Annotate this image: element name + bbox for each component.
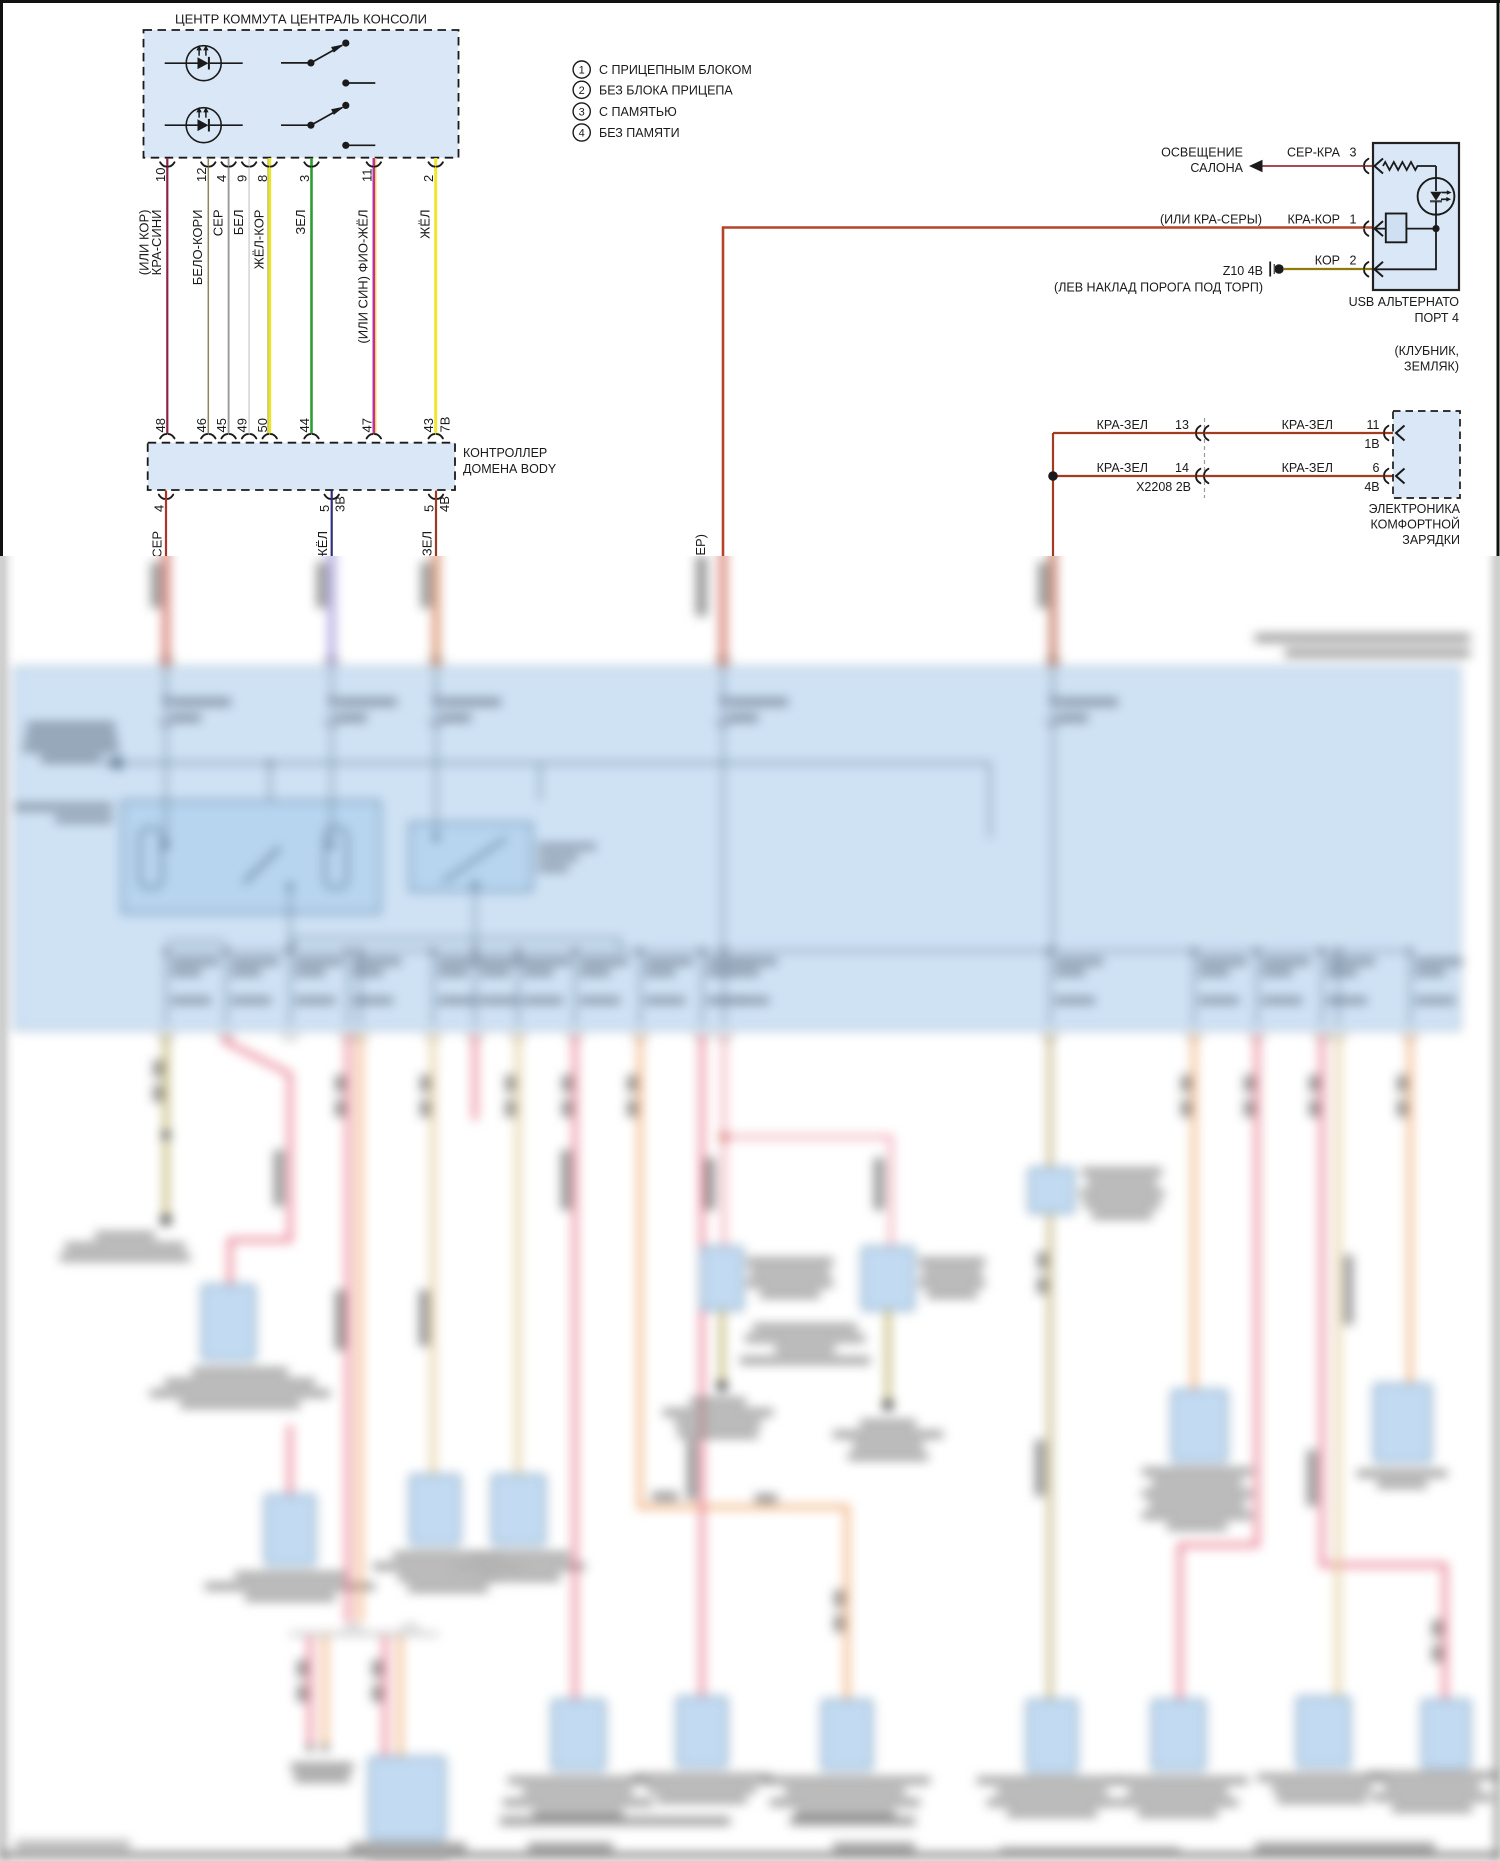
- svg-text:46: 46: [194, 418, 209, 432]
- svg-text:7В: 7В: [438, 417, 453, 433]
- svg-text:ЗАРЯДКИ: ЗАРЯДКИ: [1402, 533, 1460, 547]
- svg-text:КРА-ЗЕЛ: КРА-ЗЕЛ: [1282, 461, 1333, 475]
- svg-text:11: 11: [359, 169, 374, 183]
- svg-text:ЗЕМЛЯК): ЗЕМЛЯК): [1404, 360, 1459, 374]
- svg-text:48: 48: [153, 418, 168, 432]
- svg-text:ЗЕЛ: ЗЕЛ: [420, 531, 435, 556]
- svg-text:1: 1: [1350, 213, 1357, 227]
- svg-text:4: 4: [214, 175, 229, 182]
- svg-text:11: 11: [1367, 418, 1380, 432]
- svg-text:КРА-КОР: КРА-КОР: [1288, 213, 1340, 227]
- svg-text:ЖЁЛ: ЖЁЛ: [315, 531, 330, 556]
- svg-text:(ИЛИ КРА-СЕРЫ): (ИЛИ КРА-СЕРЫ): [1160, 213, 1262, 227]
- svg-text:3: 3: [579, 107, 585, 119]
- svg-text:(ИЛИ СИН) ФИО-ЖЁЛ: (ИЛИ СИН) ФИО-ЖЁЛ: [356, 210, 371, 344]
- svg-text:4: 4: [579, 128, 585, 140]
- svg-text:КРА-ЗЕЛ: КРА-ЗЕЛ: [1097, 418, 1148, 432]
- svg-text:КРА-ЗЕЛ: КРА-ЗЕЛ: [1282, 418, 1333, 432]
- svg-text:(ИЛИ КРА-СЕР): (ИЛИ КРА-СЕР): [693, 534, 708, 556]
- svg-text:ОСВЕЩЕНИЕ: ОСВЕЩЕНИЕ: [1161, 146, 1243, 160]
- svg-text:С ПРИЦЕПНЫМ БЛОКОМ: С ПРИЦЕПНЫМ БЛОКОМ: [599, 63, 752, 77]
- svg-text:2: 2: [421, 175, 436, 182]
- svg-text:3В: 3В: [333, 496, 348, 512]
- svg-text:14: 14: [1175, 461, 1189, 475]
- svg-text:БЕЛО-КОРИ: БЕЛО-КОРИ: [190, 210, 205, 286]
- svg-text:1: 1: [579, 65, 585, 77]
- svg-text:САЛОНА: САЛОНА: [1190, 161, 1243, 175]
- svg-text:13: 13: [1175, 418, 1189, 432]
- svg-text:КОР: КОР: [1315, 254, 1340, 268]
- svg-text:4В: 4В: [437, 496, 452, 512]
- svg-text:СЕР-КРА: СЕР-КРА: [1287, 146, 1341, 160]
- svg-text:ЗЕЛ: ЗЕЛ: [293, 210, 308, 235]
- svg-text:3: 3: [297, 175, 312, 182]
- svg-text:КОНТРОЛЛЕР: КОНТРОЛЛЕР: [463, 446, 547, 460]
- svg-text:45: 45: [214, 418, 229, 432]
- svg-text:2: 2: [1350, 254, 1357, 268]
- svg-text:50: 50: [255, 418, 270, 432]
- svg-text:2: 2: [579, 85, 585, 97]
- svg-text:X2208 2В: X2208 2В: [1136, 480, 1191, 494]
- svg-text:1В: 1В: [1364, 437, 1379, 451]
- svg-text:43: 43: [421, 418, 436, 432]
- svg-text:ЖЁЛ-КОР: ЖЁЛ-КОР: [251, 210, 266, 270]
- svg-text:44: 44: [297, 418, 312, 432]
- svg-text:9: 9: [235, 175, 250, 182]
- svg-text:КОМФОРТНОЙ: КОМФОРТНОЙ: [1370, 517, 1460, 532]
- svg-text:5: 5: [317, 505, 332, 512]
- svg-text:ЦЕНТР КОММУТА ЦЕНТРАЛЬ КОНСОЛИ: ЦЕНТР КОММУТА ЦЕНТРАЛЬ КОНСОЛИ: [175, 12, 427, 27]
- svg-text:БЕЛ: БЕЛ: [231, 209, 246, 235]
- svg-text:ЭЛЕКТРОНИКА: ЭЛЕКТРОНИКА: [1369, 502, 1461, 516]
- svg-text:С ПАМЯТЬЮ: С ПАМЯТЬЮ: [599, 105, 677, 119]
- svg-text:10: 10: [153, 168, 168, 182]
- svg-text:БЕЗ БЛОКА ПРИЦЕПА: БЕЗ БЛОКА ПРИЦЕПА: [599, 83, 733, 97]
- svg-text:6: 6: [1373, 461, 1380, 475]
- svg-text:8: 8: [255, 175, 270, 182]
- svg-text:КРА-СИНИ: КРА-СИНИ: [149, 210, 164, 276]
- svg-text:47: 47: [359, 418, 374, 432]
- svg-text:12: 12: [194, 168, 209, 182]
- svg-text:49: 49: [235, 418, 250, 432]
- svg-text:СЕР: СЕР: [210, 210, 225, 237]
- svg-text:(КЛУБНИК,: (КЛУБНИК,: [1394, 344, 1459, 358]
- svg-text:3: 3: [1350, 146, 1357, 160]
- svg-text:4: 4: [152, 505, 167, 512]
- svg-text:КРА-ЗЕЛ: КРА-ЗЕЛ: [1097, 461, 1148, 475]
- svg-text:БЕЗ ПАМЯТИ: БЕЗ ПАМЯТИ: [599, 126, 680, 140]
- svg-text:4В: 4В: [1364, 480, 1379, 494]
- svg-text:USB АЛЬТЕРНАТО: USB АЛЬТЕРНАТО: [1349, 295, 1460, 309]
- svg-text:Z10 4В: Z10 4В: [1223, 264, 1263, 278]
- svg-text:5: 5: [422, 505, 437, 512]
- svg-text:ДОМЕНА BODY: ДОМЕНА BODY: [463, 462, 557, 476]
- svg-text:ПОРТ 4: ПОРТ 4: [1414, 311, 1459, 325]
- svg-text:ЖЁЛ: ЖЁЛ: [417, 210, 432, 239]
- svg-text:(ЛЕВ НАКЛАД ПОРОГА ПОД ТОРП): (ЛЕВ НАКЛАД ПОРОГА ПОД ТОРП): [1054, 281, 1263, 295]
- svg-text:СЕР: СЕР: [150, 531, 165, 556]
